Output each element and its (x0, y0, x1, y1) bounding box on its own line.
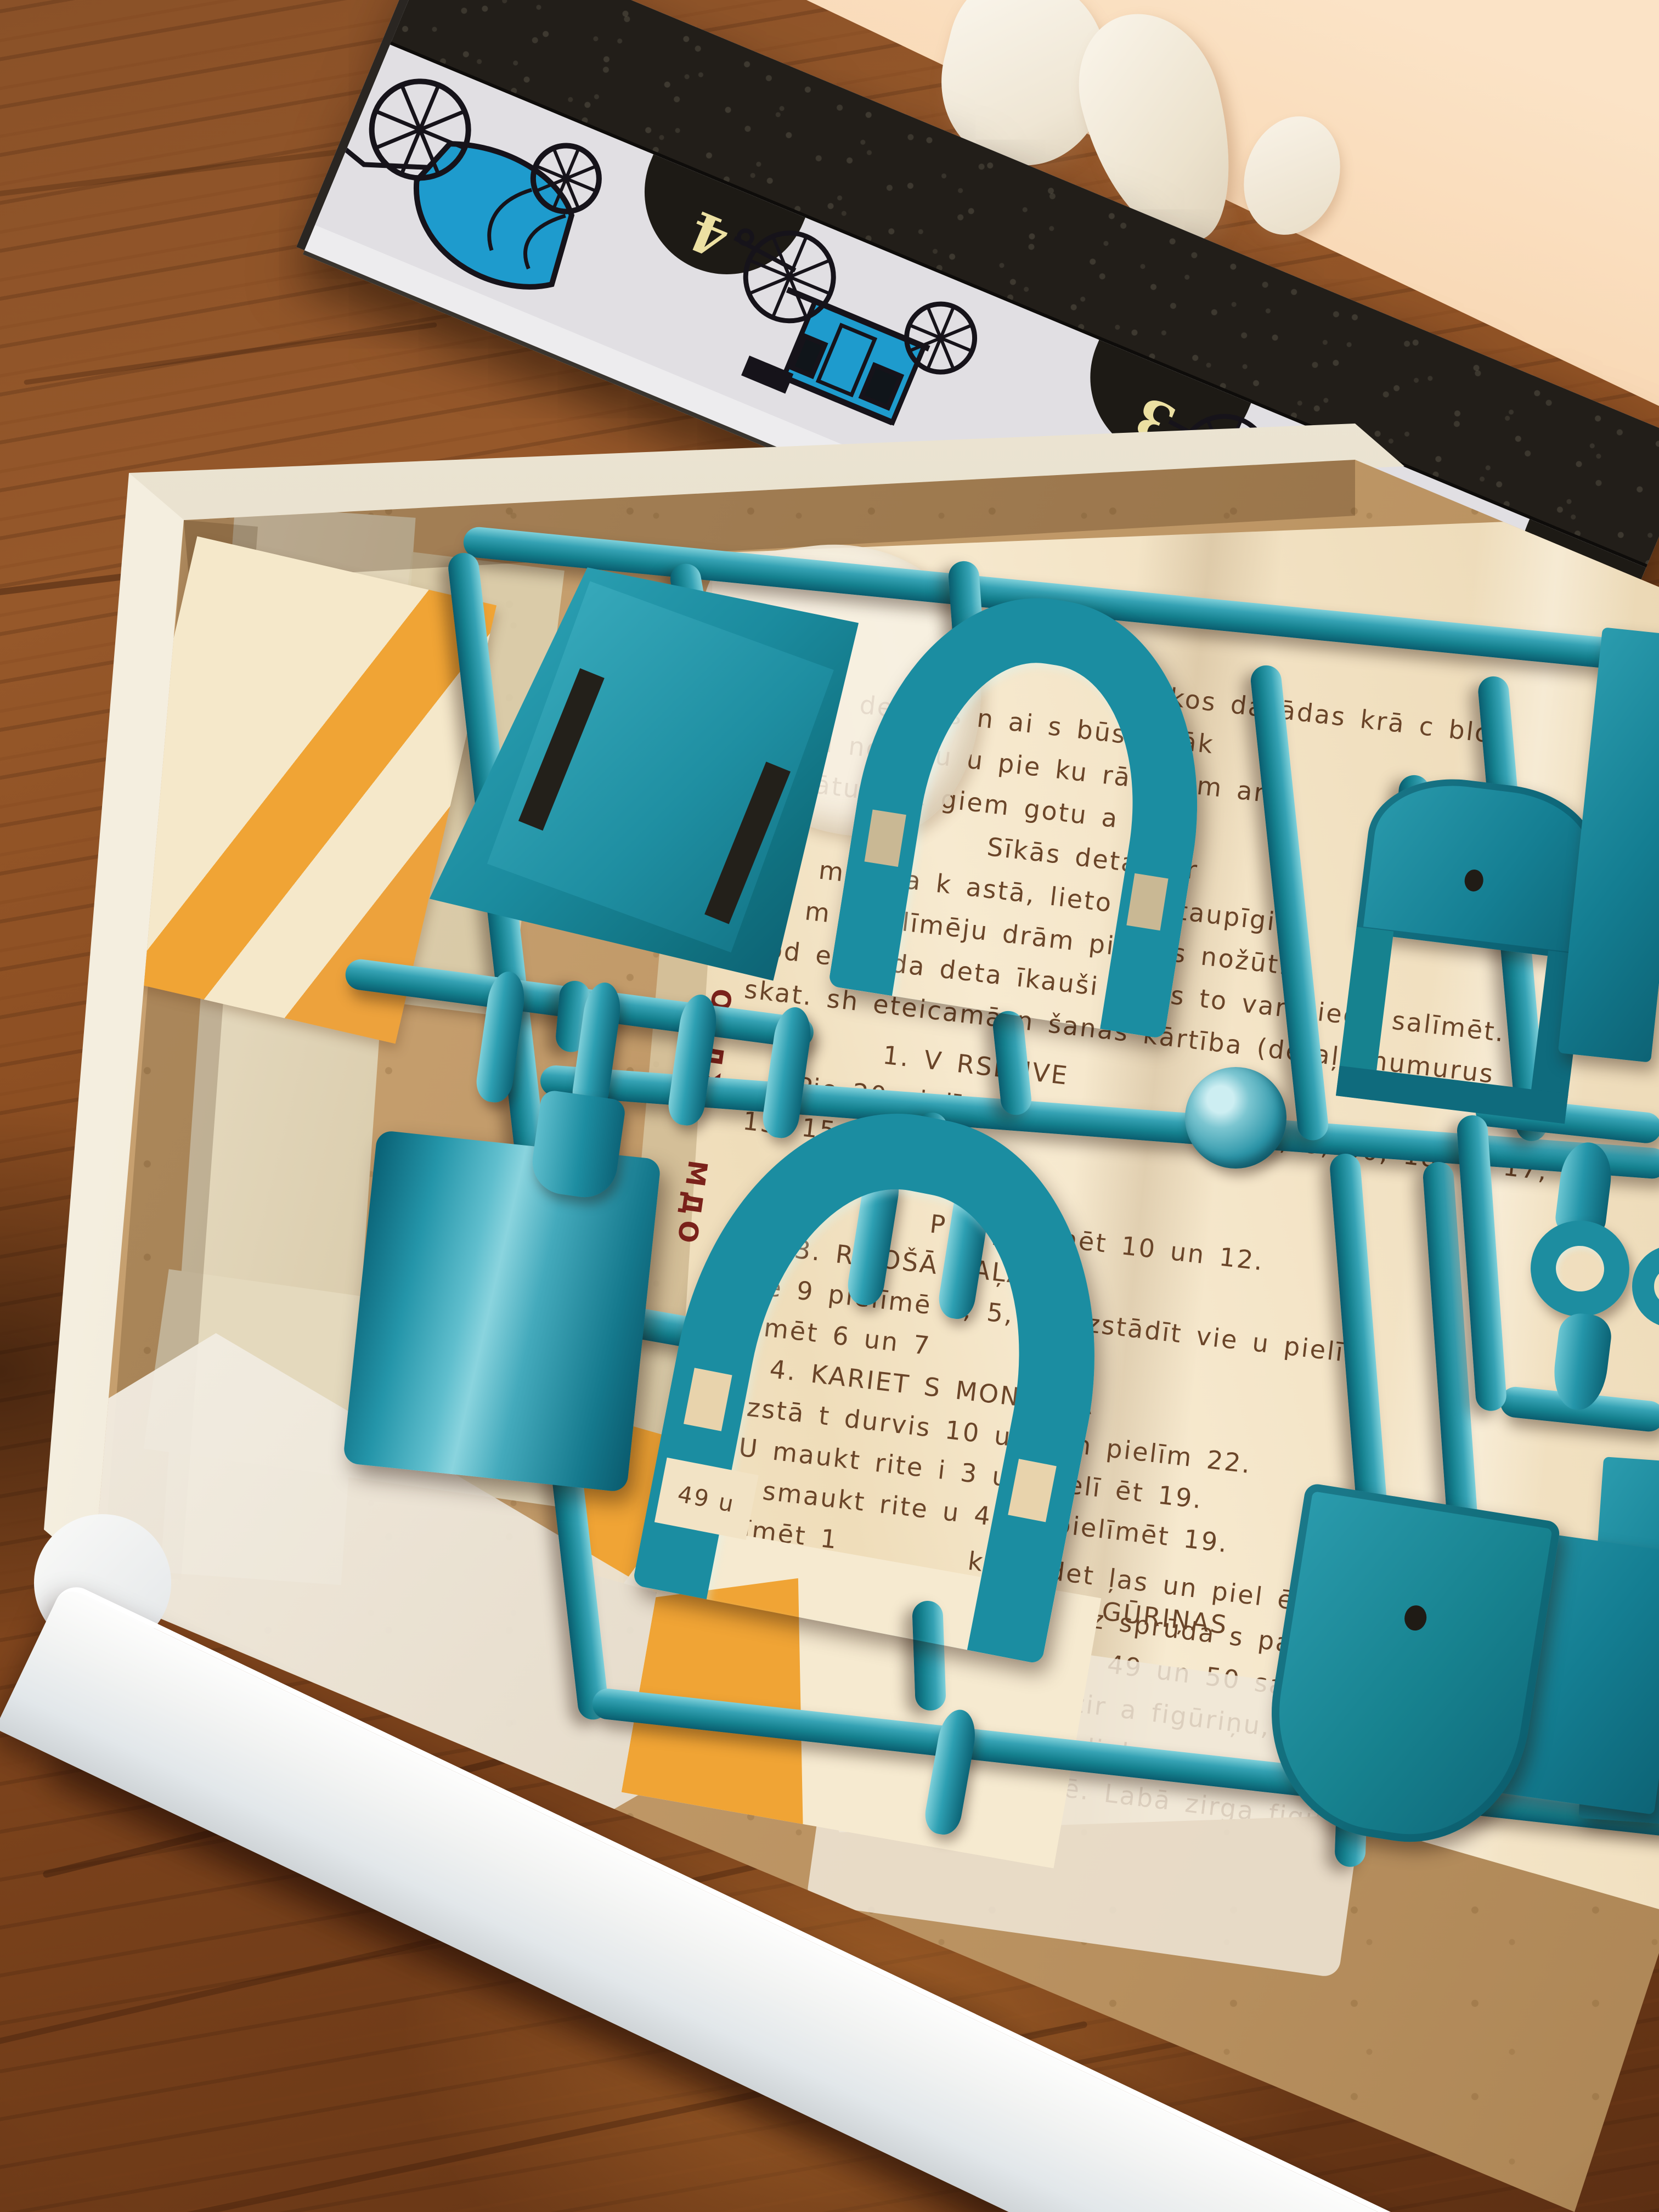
arch-ring (828, 574, 1229, 1039)
sprue-gate-boss (1185, 1067, 1286, 1169)
part-arch-body-end-a (828, 574, 1229, 1039)
wood-grain-streak (24, 322, 437, 385)
part-door-panel (1336, 769, 1605, 1124)
paper-number-through-hole: 49 u (675, 1480, 737, 1517)
photo-model-kit-box: 4 3 2 (0, 0, 1659, 2212)
shield-door-hole-dot (1403, 1604, 1429, 1632)
part-cylinder-panel (343, 1130, 662, 1492)
door-hole-dot (1463, 868, 1485, 893)
